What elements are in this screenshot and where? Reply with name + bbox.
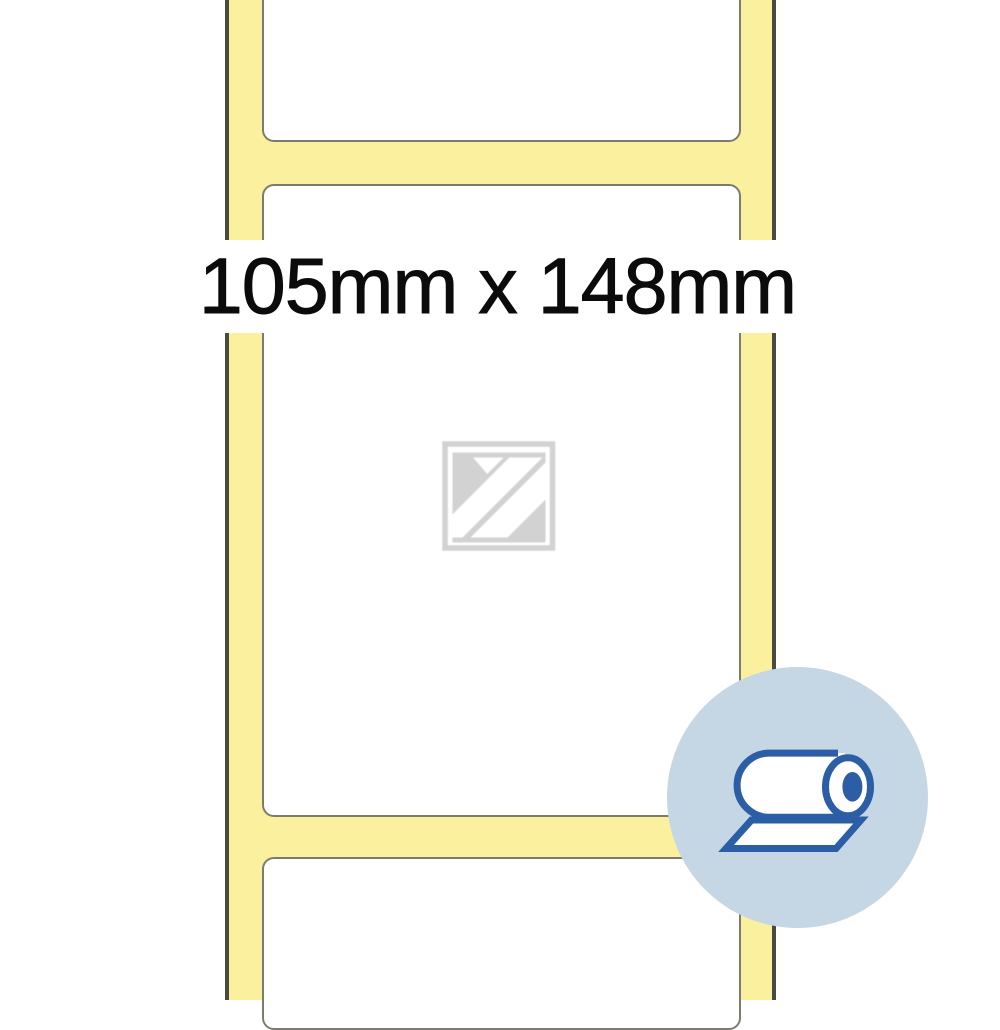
svg-text:105mm x 148mm: 105mm x 148mm bbox=[199, 241, 796, 330]
